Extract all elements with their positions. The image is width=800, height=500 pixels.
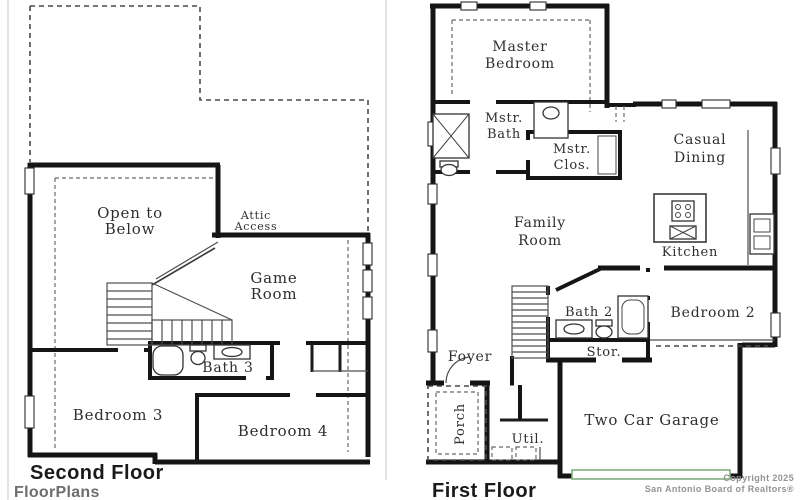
kitchen-counter (748, 130, 774, 265)
dining-entry-dashed-door (616, 106, 624, 122)
room-label-family-room: Family (514, 215, 566, 231)
master-toilet-icon (440, 161, 458, 176)
first-floor-plan: Master Bedroom Mstr. Bath Mstr. Clos. Ca… (426, 2, 794, 500)
room-label-bath-2: Bath 2 (565, 305, 613, 320)
first-floor-title: First Floor (432, 480, 536, 500)
floorplan-image: Open to Below Attic Access Game Room Bat… (0, 0, 800, 500)
room-label-util: Util. (512, 432, 545, 447)
bath2-tub-icon (618, 296, 648, 338)
kitchen-island (654, 194, 706, 242)
second-floor-title: Second Floor (30, 462, 164, 484)
bath2-sink-icon (556, 320, 592, 338)
room-label-kitchen: Kitchen (662, 245, 718, 260)
staircase-second-floor (107, 283, 232, 345)
room-label-foyer: Foyer (448, 349, 492, 365)
floorplan-drawing: Open to Below Attic Access Game Room Bat… (0, 0, 800, 500)
bathtub-icon (153, 346, 183, 375)
room-label-mstr-clos: Mstr. (553, 142, 591, 157)
room-label-casual-dining: Casual (674, 132, 727, 148)
washer-dryer-icon (492, 447, 540, 460)
room-label-two-car-garage: Two Car Garage (584, 411, 719, 429)
room-label-casual-dining-2: Dining (674, 150, 726, 166)
first-floor-walls (426, 4, 777, 478)
room-label-stor: Stor. (587, 345, 622, 360)
master-closet-shelves (598, 136, 616, 174)
room-label-bedroom-4: Bedroom 4 (238, 422, 328, 440)
room-label-master-bedroom-2: Bedroom (485, 56, 555, 72)
floorplans-caption: FloorPlans (14, 484, 100, 500)
second-floor-windows (25, 168, 372, 428)
room-label-bath-3: Bath 3 (202, 360, 253, 376)
copyright-line-1: Copyright 2025 (723, 473, 794, 483)
room-label-mstr-bath: Mstr. (485, 111, 523, 126)
room-label-family-room-2: Room (518, 233, 562, 249)
master-vanity-sink-icon (534, 102, 568, 138)
room-label-master-bedroom: Master (492, 39, 547, 55)
bath2-toilet-icon (596, 320, 612, 338)
room-label-mstr-bath-2: Bath (487, 127, 521, 142)
room-label-attic-access-2: Access (234, 220, 278, 233)
copyright-line-2: San Antonio Board of Realtors® (645, 484, 794, 494)
room-label-mstr-clos-2: Clos. (554, 158, 591, 173)
shower-icon (433, 114, 469, 158)
room-label-open-to-below-2: Below (105, 220, 156, 238)
room-label-game-room-2: Room (251, 285, 298, 303)
room-label-porch: Porch (453, 403, 468, 445)
room-label-bedroom-3: Bedroom 3 (73, 406, 163, 424)
sink-icon (214, 345, 250, 359)
staircase-first-floor (512, 286, 548, 358)
garage-door (572, 470, 730, 479)
room-label-bedroom-2: Bedroom 2 (671, 305, 756, 321)
second-floor-plan: Open to Below Attic Access Game Room Bat… (14, 6, 372, 500)
roof-outline-dashed (30, 6, 368, 236)
